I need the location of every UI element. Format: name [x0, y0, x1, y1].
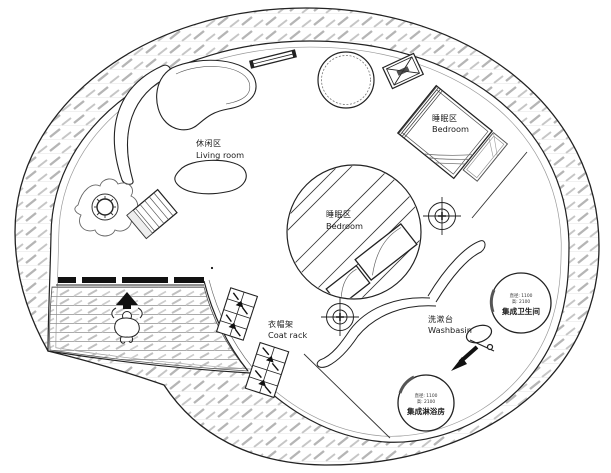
living-room-label-en: Living room	[196, 150, 244, 160]
floor-plan-page: 休闲区 Living room	[0, 0, 611, 473]
bedroom-upper-label-zh: 睡眠区	[432, 114, 458, 123]
floor-plan-canvas: 休闲区 Living room	[0, 0, 611, 473]
plan-dot	[211, 267, 213, 269]
coat-rack-label-zh: 衣帽架	[268, 319, 294, 329]
bedroom-upper-label-en: Bedroom	[432, 124, 469, 134]
round-table	[318, 52, 374, 108]
bathroom-pod-name: 集成卫生间	[501, 306, 540, 316]
bedroom-center-label-zh: 睡眠区	[326, 210, 352, 219]
coat-rack-label-en: Coat rack	[268, 330, 307, 340]
shower-pod: 直径: 1100 高: 2100 集成淋浴房	[398, 375, 454, 431]
coffee-table	[175, 160, 246, 193]
bathroom-pod: 直径: 1100 高: 2100 集成卫生间	[491, 273, 551, 333]
shower-pod-name: 集成淋浴房	[406, 406, 445, 416]
bathroom-pod-dim-height: 高: 2100	[512, 298, 531, 305]
living-room-label-zh: 休闲区	[196, 138, 222, 148]
shower-pod-dim-diameter: 直径: 1100	[415, 392, 438, 399]
bathroom-pod-dim-diameter: 直径: 1100	[510, 292, 533, 299]
washbasin-label-zh: 洗漱台	[428, 314, 454, 324]
shower-pod-dim-height: 高: 2100	[417, 398, 436, 405]
bedroom-center-label-en: Bedroom	[326, 221, 363, 231]
washbasin-label-en: Washbasin	[428, 325, 472, 335]
